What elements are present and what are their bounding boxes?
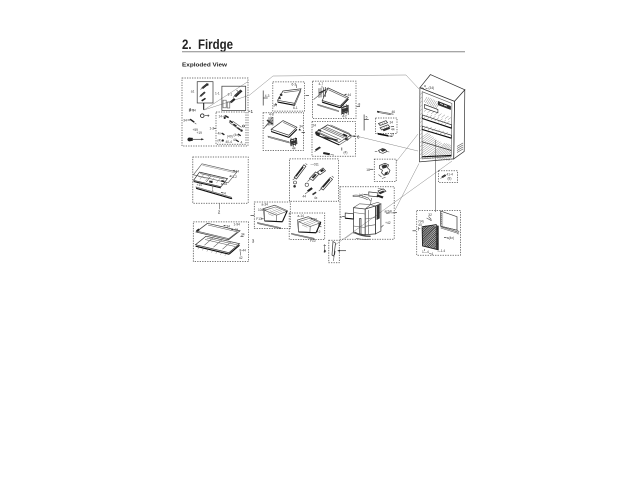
svg-text:+19: +19 — [197, 131, 203, 135]
svg-text:104: 104 — [258, 208, 264, 212]
svg-text:(a): (a) — [359, 193, 363, 197]
svg-text:(4): (4) — [218, 139, 222, 143]
svg-text:—011: —011 — [311, 162, 319, 166]
svg-text:4-2: 4-2 — [342, 115, 347, 119]
svg-text:5: 5 — [366, 116, 368, 120]
svg-text:a(24): a(24) — [385, 210, 392, 214]
svg-text:4x: 4x — [218, 132, 222, 136]
svg-text:8-44: 8-44 — [240, 248, 247, 252]
svg-text:a-34: a-34 — [221, 182, 228, 186]
svg-text:42: 42 — [239, 256, 243, 260]
svg-text:+2: +2 — [317, 230, 321, 234]
svg-text:34: 34 — [241, 232, 245, 236]
svg-text:44: 44 — [418, 223, 422, 227]
svg-text:—1.4: —1.4 — [438, 249, 446, 253]
svg-text:6-1: 6-1 — [293, 106, 298, 110]
svg-text:a2: a2 — [206, 83, 210, 87]
svg-text:(34): (34) — [429, 86, 435, 90]
svg-text:a1: a1 — [191, 90, 195, 94]
svg-text:a: a — [424, 84, 426, 88]
svg-text:1: 1 — [251, 109, 254, 114]
svg-text:2. Firdge: 2. Firdge — [182, 37, 233, 52]
svg-text:1-2: 1-2 — [232, 175, 237, 179]
svg-text:(4): (4) — [344, 151, 348, 155]
svg-text:a-14: a-14 — [298, 214, 305, 218]
svg-text:44: 44 — [303, 195, 307, 199]
svg-text:34: 34 — [183, 118, 187, 122]
svg-text:1: 1 — [212, 188, 214, 192]
svg-text:a(4x): a(4x) — [447, 236, 454, 240]
svg-text:34: 34 — [226, 224, 230, 228]
svg-text:24: 24 — [313, 124, 317, 128]
svg-text:34: 34 — [299, 125, 303, 129]
svg-text:32: 32 — [428, 213, 432, 217]
svg-text:-34: -34 — [234, 228, 239, 232]
svg-text:1-94: 1-94 — [234, 223, 241, 227]
svg-text:6-3: 6-3 — [292, 83, 297, 87]
svg-text:a: a — [340, 215, 342, 219]
svg-text:4-7: 4-7 — [319, 82, 324, 86]
svg-text:-8: -8 — [358, 103, 361, 107]
svg-text:1-1: 1-1 — [215, 92, 220, 96]
svg-text:84: 84 — [318, 223, 322, 227]
svg-text:44: 44 — [292, 146, 296, 150]
svg-text:1—4: 1—4 — [422, 250, 429, 254]
svg-text:(8): (8) — [448, 177, 452, 181]
svg-text:4-3: 4-3 — [265, 94, 270, 98]
svg-text:a-34: a-34 — [262, 203, 269, 207]
svg-text:4: 4 — [431, 252, 433, 256]
svg-text:14: 14 — [192, 109, 196, 113]
svg-text:4-8: 4-8 — [269, 113, 274, 117]
svg-text:46: 46 — [392, 110, 396, 114]
svg-text:+42: +42 — [385, 221, 391, 225]
svg-text:44: 44 — [348, 93, 352, 97]
svg-text:4x: 4x — [314, 196, 318, 200]
svg-text:F10: F10 — [310, 239, 316, 243]
svg-text:15: 15 — [390, 133, 394, 137]
svg-text:40-4: 40-4 — [226, 140, 233, 144]
svg-text:4: 4 — [241, 141, 243, 145]
svg-text:34: 34 — [236, 170, 240, 174]
svg-text:44: 44 — [391, 128, 395, 132]
svg-text:Exploded View: Exploded View — [182, 63, 228, 69]
svg-text:4: 4 — [224, 192, 226, 196]
svg-text:1-1: 1-1 — [228, 93, 233, 97]
svg-text:34: 34 — [390, 121, 394, 125]
svg-text:18: 18 — [366, 168, 370, 172]
svg-text:(40): (40) — [227, 135, 233, 139]
svg-text:3: 3 — [252, 238, 255, 243]
svg-text:2: 2 — [218, 210, 221, 215]
svg-text:34: 34 — [313, 217, 317, 221]
svg-text:+14: +14 — [197, 183, 203, 187]
